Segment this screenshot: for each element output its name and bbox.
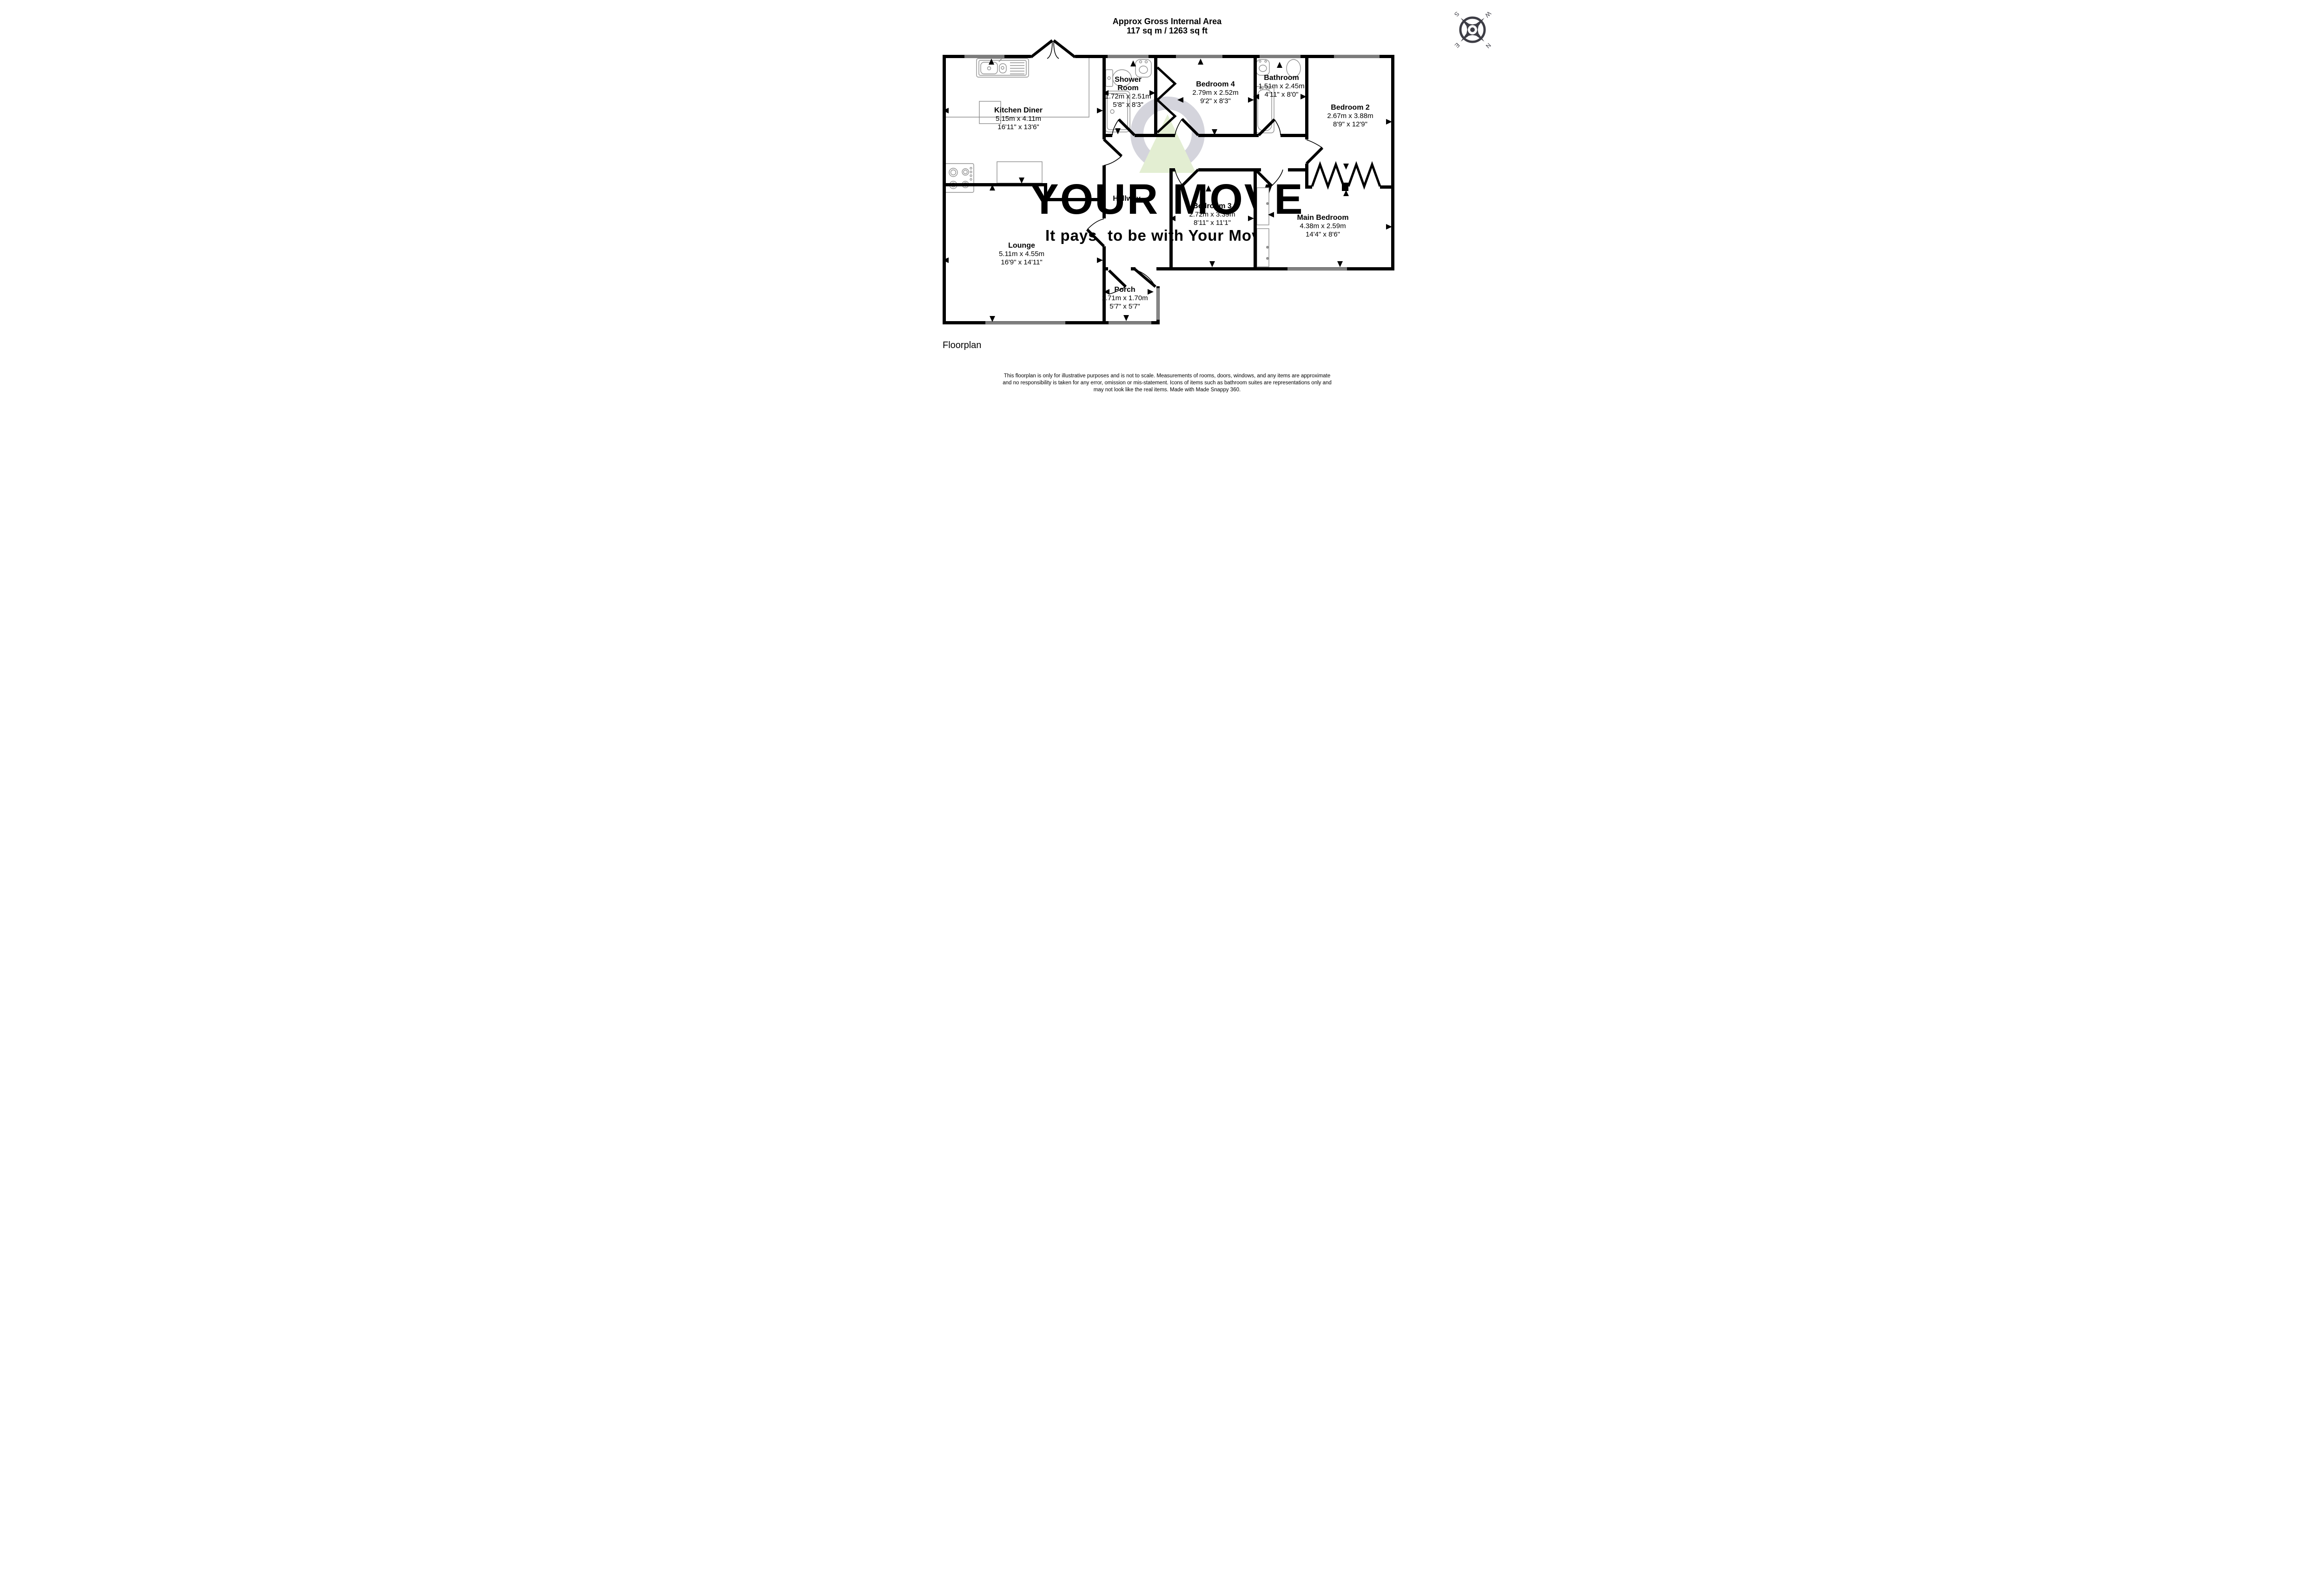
room-label-porch-imperial: 5'7" x 5'7" <box>1109 303 1140 310</box>
room-label-porch-name: Porch <box>1114 286 1135 294</box>
watermark-tagline-green: to be with Your Move <box>1108 227 1270 244</box>
window-icon <box>1109 321 1151 324</box>
room-label-lounge-metric: 5.11m x 4.55m <box>999 250 1044 258</box>
room-label-bathroom-imperial: 4'11" x 8'0" <box>1265 91 1299 99</box>
room-label-main-bedroom-imperial: 14'4" x 8'6" <box>1306 230 1340 238</box>
kitchen-sink-icon <box>977 58 1029 77</box>
wardrobe-doors-icon <box>1312 165 1344 186</box>
disclaimer-line2: and no responsibility is taken for any e… <box>1003 380 1332 386</box>
floorplan-page: YOUR MOVE It pays to be with Your Move <box>829 0 1495 395</box>
page-title-line2: 117 sq m / 1263 sq ft <box>1127 26 1208 35</box>
room-label-bathroom-metric: 1.51m x 2.45m <box>1258 82 1304 90</box>
window-icon <box>1176 55 1222 58</box>
compass-east-label: E <box>1453 41 1461 49</box>
compass-north-label: N <box>1485 42 1492 50</box>
room-label-bedroom2-imperial: 8'9" x 12'9" <box>1333 120 1367 128</box>
window-icon <box>1108 55 1149 58</box>
disclaimer-line3: may not look like the real items. Made w… <box>1094 387 1241 393</box>
room-label-bedroom4-metric: 2.79m x 2.52m <box>1192 89 1238 97</box>
room-label-shower-imperial: 5'8" x 8'3" <box>1113 101 1143 109</box>
room-label-shower-name1: Shower <box>1115 76 1142 84</box>
compass-west-label: W <box>1483 10 1492 19</box>
page-title-line1: Approx Gross Internal Area <box>1113 17 1222 26</box>
compass-south-label: S <box>1453 10 1461 18</box>
kitchen-hob-icon <box>945 164 974 192</box>
watermark-tagline-gray: It pays <box>1045 227 1097 244</box>
room-label-main-bedroom-metric: 4.38m x 2.59m <box>1300 222 1346 230</box>
room-label-bedroom3-metric: 2.72m x 3.39m <box>1189 211 1235 218</box>
room-label-kitchen-name: Kitchen Diner <box>994 106 1043 114</box>
room-label-hallway-name: Hallway <box>1113 195 1141 203</box>
window-icon <box>1334 55 1380 58</box>
room-label-bedroom4-imperial: 9'2" x 8'3" <box>1200 97 1231 105</box>
window-icon <box>985 321 1065 324</box>
window-icon <box>1260 55 1301 58</box>
bathroom-basin-icon <box>1256 59 1269 75</box>
room-label-porch-metric: 1.71m x 1.70m <box>1102 294 1148 302</box>
floorplan-caption: Floorplan <box>943 340 981 350</box>
french-doors-icon <box>1031 40 1075 59</box>
room-label-bedroom2-name: Bedroom 2 <box>1331 104 1370 112</box>
room-label-bedroom4-name: Bedroom 4 <box>1196 80 1235 88</box>
room-label-main-bedroom-name: Main Bedroom <box>1297 214 1348 222</box>
wardrobe-doors-icon <box>1348 165 1380 186</box>
door-kitchen <box>1104 139 1122 165</box>
door-bedroom2 <box>1307 140 1322 164</box>
window-icon <box>1156 288 1160 320</box>
room-label-bedroom3-name: Bedroom 3 <box>1193 202 1232 210</box>
room-label-shower-name2: Room <box>1117 84 1138 92</box>
room-label-lounge-name: Lounge <box>1008 242 1035 250</box>
room-label-shower-metric: 1.72m x 2.51m <box>1105 92 1151 100</box>
basin-icon <box>1136 59 1151 77</box>
floorplan-canvas: YOUR MOVE It pays to be with Your Move <box>829 0 1495 395</box>
doors <box>1031 40 1380 294</box>
room-label-kitchen-imperial: 16'11" x 13'6" <box>997 123 1039 131</box>
room-label-bedroom2-metric: 2.67m x 3.88m <box>1327 112 1373 120</box>
disclaimer-line1: This floorplan is only for illustrative … <box>1004 373 1330 379</box>
room-label-lounge-imperial: 16'9" x 14'11" <box>1001 258 1043 266</box>
room-label-bedroom3-imperial: 8'11" x 11'1" <box>1194 219 1231 227</box>
window-icon <box>964 55 1004 58</box>
room-label-kitchen-metric: 5.15m x 4.11m <box>996 115 1041 123</box>
door-porch-entrance <box>1134 269 1155 287</box>
room-label-bathroom-name: Bathroom <box>1264 74 1299 82</box>
compass-rose-icon: N E S W <box>1438 0 1495 65</box>
window-icon <box>1287 267 1347 270</box>
